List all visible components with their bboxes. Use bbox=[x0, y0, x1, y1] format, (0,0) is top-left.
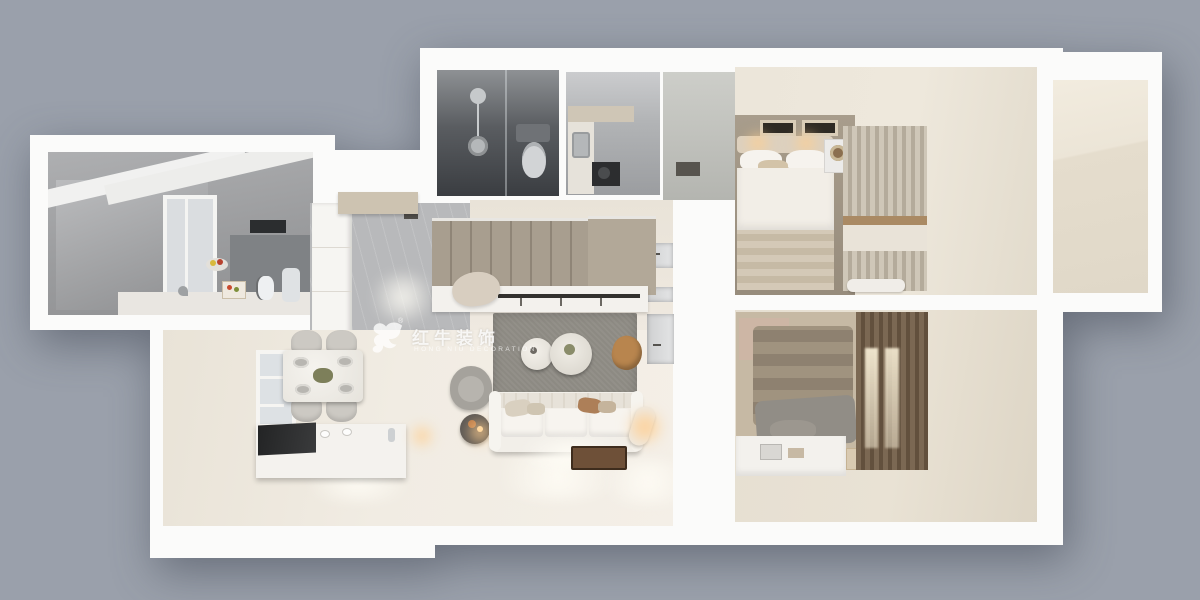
sofa-arm bbox=[489, 391, 501, 451]
faucet bbox=[178, 286, 188, 296]
toilet-bowl bbox=[522, 142, 546, 178]
seat-cushion bbox=[545, 409, 587, 437]
island-dark-top bbox=[258, 422, 316, 455]
window-mullion bbox=[260, 376, 284, 379]
wall-niche bbox=[647, 314, 674, 364]
watermark-subtitle: HONG NIU DECORATION bbox=[414, 346, 537, 353]
table-centerpiece bbox=[313, 368, 333, 383]
side-table bbox=[460, 414, 490, 444]
master-bedroom bbox=[735, 67, 1037, 295]
fruit-print-dot bbox=[234, 287, 239, 292]
window-light-streak bbox=[865, 348, 878, 448]
table-plant bbox=[564, 344, 575, 355]
toilet-tank bbox=[516, 124, 550, 142]
kettle bbox=[258, 276, 274, 300]
bottle bbox=[388, 428, 395, 442]
table-lamp bbox=[477, 426, 483, 432]
stair-landing bbox=[588, 216, 656, 295]
floor-mat bbox=[676, 162, 700, 176]
door-mat bbox=[571, 446, 627, 470]
end-blanket bbox=[737, 230, 834, 290]
wall-picture bbox=[760, 120, 796, 136]
fruit bbox=[217, 259, 223, 265]
registered-mark: ® bbox=[398, 318, 403, 325]
bathroom bbox=[437, 70, 559, 196]
entry-upper-cabinet bbox=[338, 192, 418, 214]
duvet bbox=[737, 168, 834, 232]
upper-cabinet bbox=[568, 106, 634, 122]
shoe-cabinet bbox=[312, 203, 352, 335]
copper-decor bbox=[468, 420, 476, 428]
book bbox=[788, 448, 804, 458]
empty-annex-room bbox=[1053, 80, 1148, 293]
cabinet-seam bbox=[312, 247, 352, 248]
cabinet-seam bbox=[312, 291, 352, 292]
foot-bench bbox=[847, 279, 905, 292]
dish bbox=[320, 430, 330, 438]
window-light-streak bbox=[885, 348, 899, 448]
watermark: ® 红牛装饰 HONG NIU DECORATION bbox=[368, 316, 558, 366]
range-hood bbox=[250, 220, 286, 233]
second-bedroom bbox=[735, 310, 1037, 522]
upper-hallway bbox=[663, 72, 735, 200]
armchair-cushion bbox=[458, 376, 484, 402]
niche-hook bbox=[653, 344, 661, 346]
fruit-print-dot bbox=[227, 285, 232, 290]
curtain-rod-wood bbox=[843, 216, 927, 225]
burner bbox=[598, 167, 610, 179]
wall-gap bbox=[843, 225, 927, 251]
wall-picture bbox=[802, 120, 838, 136]
glass-divider bbox=[505, 70, 507, 196]
dish bbox=[342, 428, 352, 436]
shower-head-icon bbox=[470, 88, 486, 104]
hanger bbox=[520, 298, 522, 306]
bull-logo-icon bbox=[368, 320, 406, 354]
kitchenette bbox=[566, 72, 660, 195]
window-mullion bbox=[260, 404, 284, 407]
plate bbox=[337, 356, 353, 367]
curtains bbox=[843, 126, 927, 216]
plate bbox=[338, 383, 354, 394]
fruit bbox=[210, 260, 216, 266]
plate bbox=[295, 384, 311, 395]
laptop bbox=[760, 444, 782, 460]
sofa-pillow bbox=[527, 403, 545, 415]
shower-valve bbox=[468, 136, 488, 156]
hanger bbox=[560, 298, 562, 306]
plate bbox=[293, 357, 309, 368]
floorplan-render: ® 红牛装饰 HONG NIU DECORATION bbox=[0, 0, 1200, 600]
hanger bbox=[600, 298, 602, 306]
kitchen-wing bbox=[48, 152, 313, 315]
sink bbox=[572, 132, 590, 158]
water-purifier bbox=[282, 268, 300, 302]
sofa-pillow bbox=[598, 401, 616, 413]
